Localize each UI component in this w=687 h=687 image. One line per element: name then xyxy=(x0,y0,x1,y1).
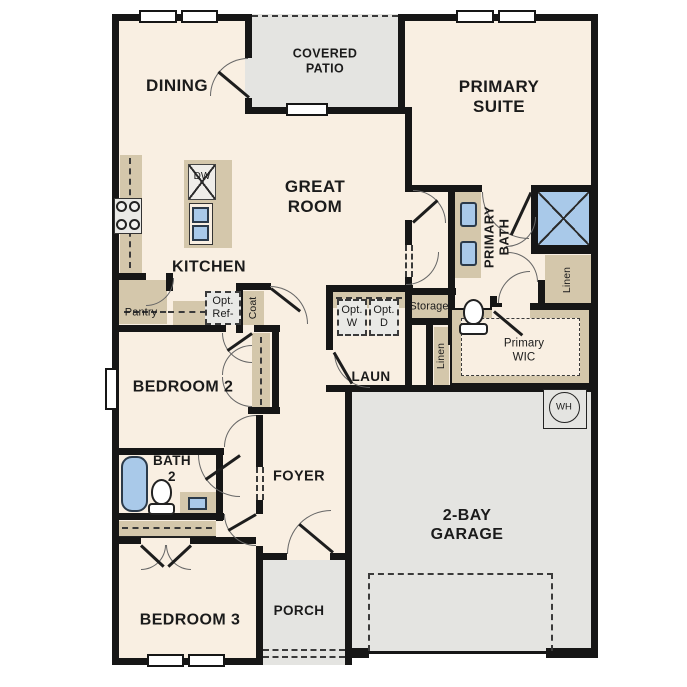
toilet-icon xyxy=(463,299,484,325)
label-dishwasher: DW xyxy=(194,171,211,183)
room-label-kitchen: KITCHEN xyxy=(172,259,246,278)
wall xyxy=(326,285,333,350)
room-label-primary-suite: PRIMARY SUITE xyxy=(459,77,540,117)
window-icon xyxy=(147,654,184,667)
dashed-line xyxy=(260,337,262,405)
wall xyxy=(272,325,279,413)
wall xyxy=(405,220,412,245)
wall xyxy=(112,537,141,544)
wall xyxy=(330,553,345,560)
wall xyxy=(448,185,455,295)
room-label-garage: 2-BAY GARAGE xyxy=(431,507,504,545)
wall xyxy=(591,14,598,658)
wall xyxy=(243,283,271,290)
room-label-foyer: FOYER xyxy=(273,468,325,485)
label-pantry: Pantry xyxy=(125,307,157,320)
room-label-dining: DINING xyxy=(146,76,208,96)
label-opt-washer: Opt. W xyxy=(341,304,362,330)
wall xyxy=(112,273,146,280)
dashed-line xyxy=(168,311,206,313)
window-icon xyxy=(105,368,118,410)
wall xyxy=(112,14,119,665)
vanity-sink xyxy=(460,241,477,266)
wall xyxy=(112,325,226,332)
cased-opening xyxy=(256,467,264,500)
label-water-heater: WH xyxy=(556,401,572,412)
sink-basin xyxy=(192,225,209,241)
burner-icon xyxy=(116,201,127,212)
wall xyxy=(367,651,547,654)
wall xyxy=(256,500,263,514)
window-icon xyxy=(139,10,177,23)
wall xyxy=(263,553,287,560)
room-label-bedroom-3: BEDROOM 3 xyxy=(140,612,241,631)
room-label-bath-2: BATH 2 xyxy=(153,453,191,485)
burner-icon xyxy=(129,201,140,212)
dashed-line xyxy=(122,527,212,529)
bathtub-icon xyxy=(121,456,148,512)
wall xyxy=(531,247,598,254)
stove xyxy=(114,198,142,234)
vanity-sink xyxy=(188,497,207,510)
dashed-line xyxy=(263,649,345,651)
room-label-great-room: GREAT ROOM xyxy=(285,177,345,217)
closet-shelf xyxy=(119,521,216,538)
wall xyxy=(405,107,412,187)
wall xyxy=(345,648,369,658)
label-coat: Coat xyxy=(247,297,259,320)
room-label-bedroom-2: BEDROOM 2 xyxy=(133,379,234,398)
vanity-sink xyxy=(460,202,477,227)
wall xyxy=(345,385,352,665)
burner-icon xyxy=(116,219,127,230)
label-opt-ref: Opt. Ref- xyxy=(212,295,233,321)
toilet-tank xyxy=(459,323,488,335)
dashed-line xyxy=(263,656,345,658)
label-linen-hall: Linen xyxy=(435,343,447,369)
wall xyxy=(256,546,263,665)
room-label-primary-bath: PRIMARY BATH xyxy=(482,206,513,268)
window-icon xyxy=(188,654,225,667)
window-icon xyxy=(286,103,328,116)
wall xyxy=(245,14,252,58)
wall xyxy=(405,318,456,325)
wall xyxy=(426,320,433,388)
room-label-laundry: LAUN xyxy=(351,369,390,385)
room-label-porch: PORCH xyxy=(274,603,325,619)
wall xyxy=(248,407,280,414)
shower-icon xyxy=(536,190,591,247)
wall xyxy=(398,14,405,114)
room-label-covered-patio: COVERED PATIO xyxy=(293,46,358,76)
floor-plan: DINING COVERED PATIO PRIMARY SUITE GREAT… xyxy=(0,0,687,687)
window-icon xyxy=(181,10,218,23)
burner-icon xyxy=(129,219,140,230)
room-label-primary-wic: Primary WIC xyxy=(504,337,544,364)
label-linen-bath: Linen xyxy=(561,267,573,293)
wall xyxy=(326,285,413,292)
label-opt-dryer: Opt. D xyxy=(373,304,394,330)
window-icon xyxy=(498,10,536,23)
sink-basin xyxy=(192,207,209,223)
cabinet-fill xyxy=(173,301,206,325)
kitchen-sink xyxy=(189,203,213,245)
wall xyxy=(546,648,598,658)
garage-door-outline xyxy=(368,573,553,651)
toilet-tank xyxy=(148,503,175,515)
window-icon xyxy=(456,10,494,23)
dashed-line xyxy=(252,15,398,17)
label-storage: Storage xyxy=(409,301,448,314)
wall xyxy=(256,415,263,467)
